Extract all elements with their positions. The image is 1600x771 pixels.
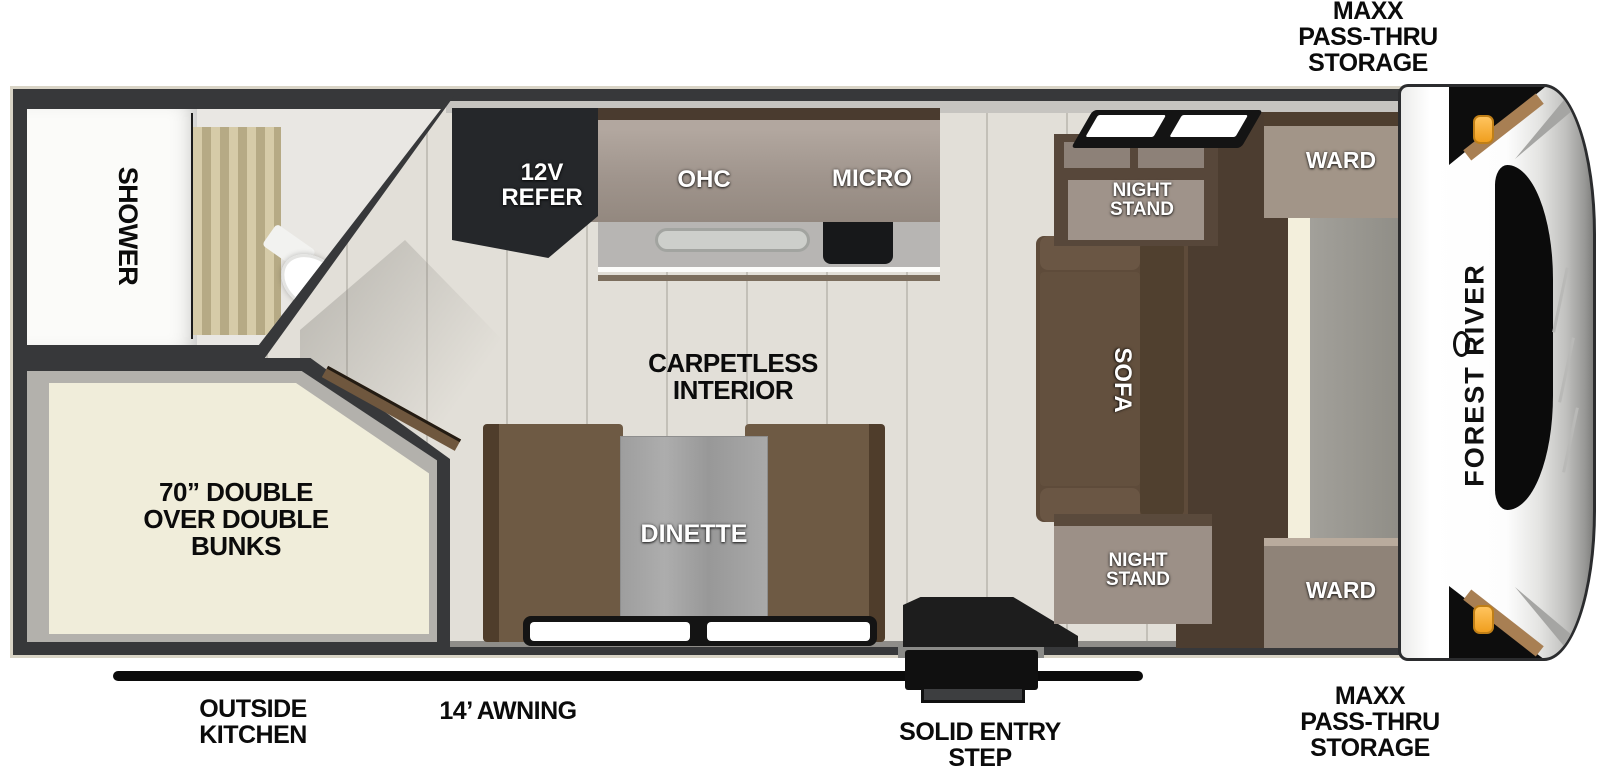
- sofa-back-cushion: [1140, 242, 1184, 516]
- label-nightstand-top: NIGHT STAND: [1072, 181, 1212, 219]
- label-storage-bottom: MAXX PASS-THRU STORAGE: [1260, 683, 1480, 761]
- label-sofa: SOFA: [1108, 347, 1136, 412]
- label-ward-bottom: WARD: [1271, 577, 1411, 604]
- marker-light-bottom: [1473, 605, 1494, 634]
- front-chevron-line: [1552, 267, 1569, 332]
- label-shower: SHOWER: [115, 167, 141, 286]
- front-chevron-line: [1562, 407, 1579, 472]
- front-chevron-line: [1558, 337, 1575, 402]
- shower-stall: [27, 109, 197, 345]
- forest-river-logo: FOREST RIVER: [1460, 263, 1491, 487]
- label-micro: MICRO: [822, 165, 922, 193]
- bedroom-window-pane: [1169, 115, 1248, 137]
- label-awning: 14’ AWNING: [398, 698, 618, 724]
- entry-step-tread: [921, 686, 1025, 703]
- cooktop: [823, 222, 893, 264]
- label-dinette: DINETTE: [624, 520, 764, 549]
- entry-step: [905, 650, 1038, 690]
- label-bunks: 70” DOUBLE OVER DOUBLE BUNKS: [116, 479, 356, 560]
- kitchen-sink: [655, 228, 810, 252]
- marker-light-top: [1473, 115, 1494, 144]
- label-carpetless-interior: CARPETLESS INTERIOR: [623, 350, 843, 404]
- label-storage-top: MAXX PASS-THRU STORAGE: [1258, 0, 1478, 76]
- dinette-window-pane-left: [530, 622, 690, 641]
- label-nightstand-bottom: NIGHT STAND: [1068, 551, 1208, 589]
- front-cap: FOREST RIVER: [1398, 84, 1596, 661]
- label-entry-step: SOLID ENTRY STEP: [870, 719, 1090, 771]
- windshield-graphic: [1495, 165, 1553, 510]
- label-ohc: OHC: [654, 166, 754, 194]
- front-bed-platform: [1286, 214, 1310, 542]
- kitchen-cabinet-base: [598, 275, 940, 281]
- shower-curtain: [193, 127, 281, 335]
- floorplan-canvas: FOREST RIVER MAXX PASS-THRU STORAGE MAXX…: [0, 0, 1600, 771]
- label-refer: 12V REFER: [472, 160, 612, 210]
- label-outside-kitchen: OUTSIDE KITCHEN: [143, 696, 363, 748]
- dinette-bench-left: [483, 424, 623, 642]
- bedroom-window-pane: [1085, 115, 1166, 137]
- dinette-window-pane-right: [707, 622, 870, 641]
- label-ward-top: WARD: [1271, 147, 1411, 174]
- bedroom-windows: [1071, 110, 1263, 148]
